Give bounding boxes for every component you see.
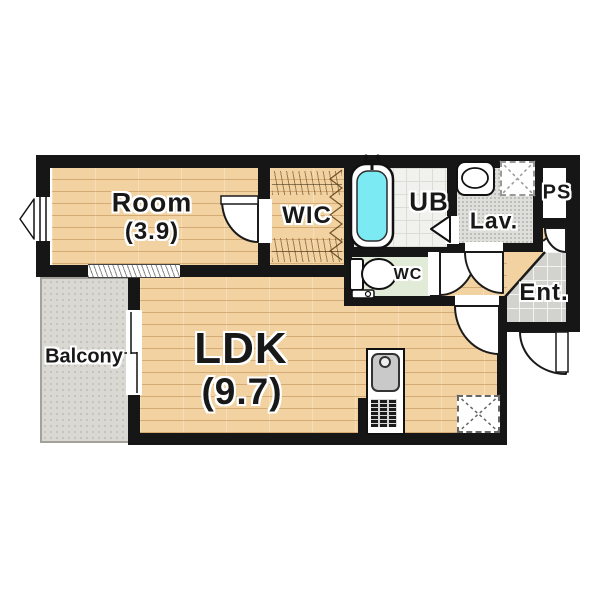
kitchen-faucet-icon — [379, 356, 391, 368]
ldk-area-label: (9.7) — [201, 371, 282, 413]
lav-doorway — [465, 242, 503, 253]
room-label: Room — [112, 188, 193, 219]
wall-room-ldk — [36, 265, 356, 277]
window-swing-icon — [20, 199, 34, 239]
ldk-label: LDK — [194, 324, 287, 374]
wall-ps-bottom — [543, 218, 580, 228]
wic-hanger-rail-bottom — [272, 238, 342, 262]
wall-ent-bottom — [497, 322, 580, 332]
wall-outer-top — [36, 155, 580, 168]
wall-outer-bottom — [128, 433, 507, 445]
ldk-doorway — [455, 295, 499, 306]
entry-nook-floor — [543, 228, 568, 252]
floor-plan-canvas: Room (3.9) WIC UB Lav. PS WC Ent. LDK (9… — [0, 0, 600, 600]
wic-hanger-rail-top — [272, 171, 342, 195]
wc-doorway — [428, 252, 442, 295]
ldk-balcony-window — [126, 310, 142, 395]
washing-machine-space — [500, 161, 535, 196]
ps-label: PS — [543, 182, 572, 205]
hall-floor — [440, 252, 507, 296]
gas-stove-icon — [371, 399, 397, 427]
room-doorway — [256, 199, 272, 243]
ub-doorway — [445, 216, 459, 244]
balcony-label: Balcony — [45, 346, 123, 369]
room-balcony-window — [88, 264, 180, 278]
entrance-door-arc — [520, 332, 566, 374]
wall-wic-ub — [344, 155, 354, 247]
room-area-label: (3.9) — [125, 218, 179, 246]
refrigerator-space — [457, 395, 500, 433]
wic-label: WIC — [282, 202, 332, 230]
wc-label: WC — [394, 266, 423, 284]
room-left-window — [34, 197, 52, 241]
ub-label: UB — [409, 187, 449, 218]
lav-label: Lav. — [470, 208, 518, 235]
ent-label: Ent. — [519, 279, 568, 307]
entrance-door-leaf — [556, 332, 568, 372]
